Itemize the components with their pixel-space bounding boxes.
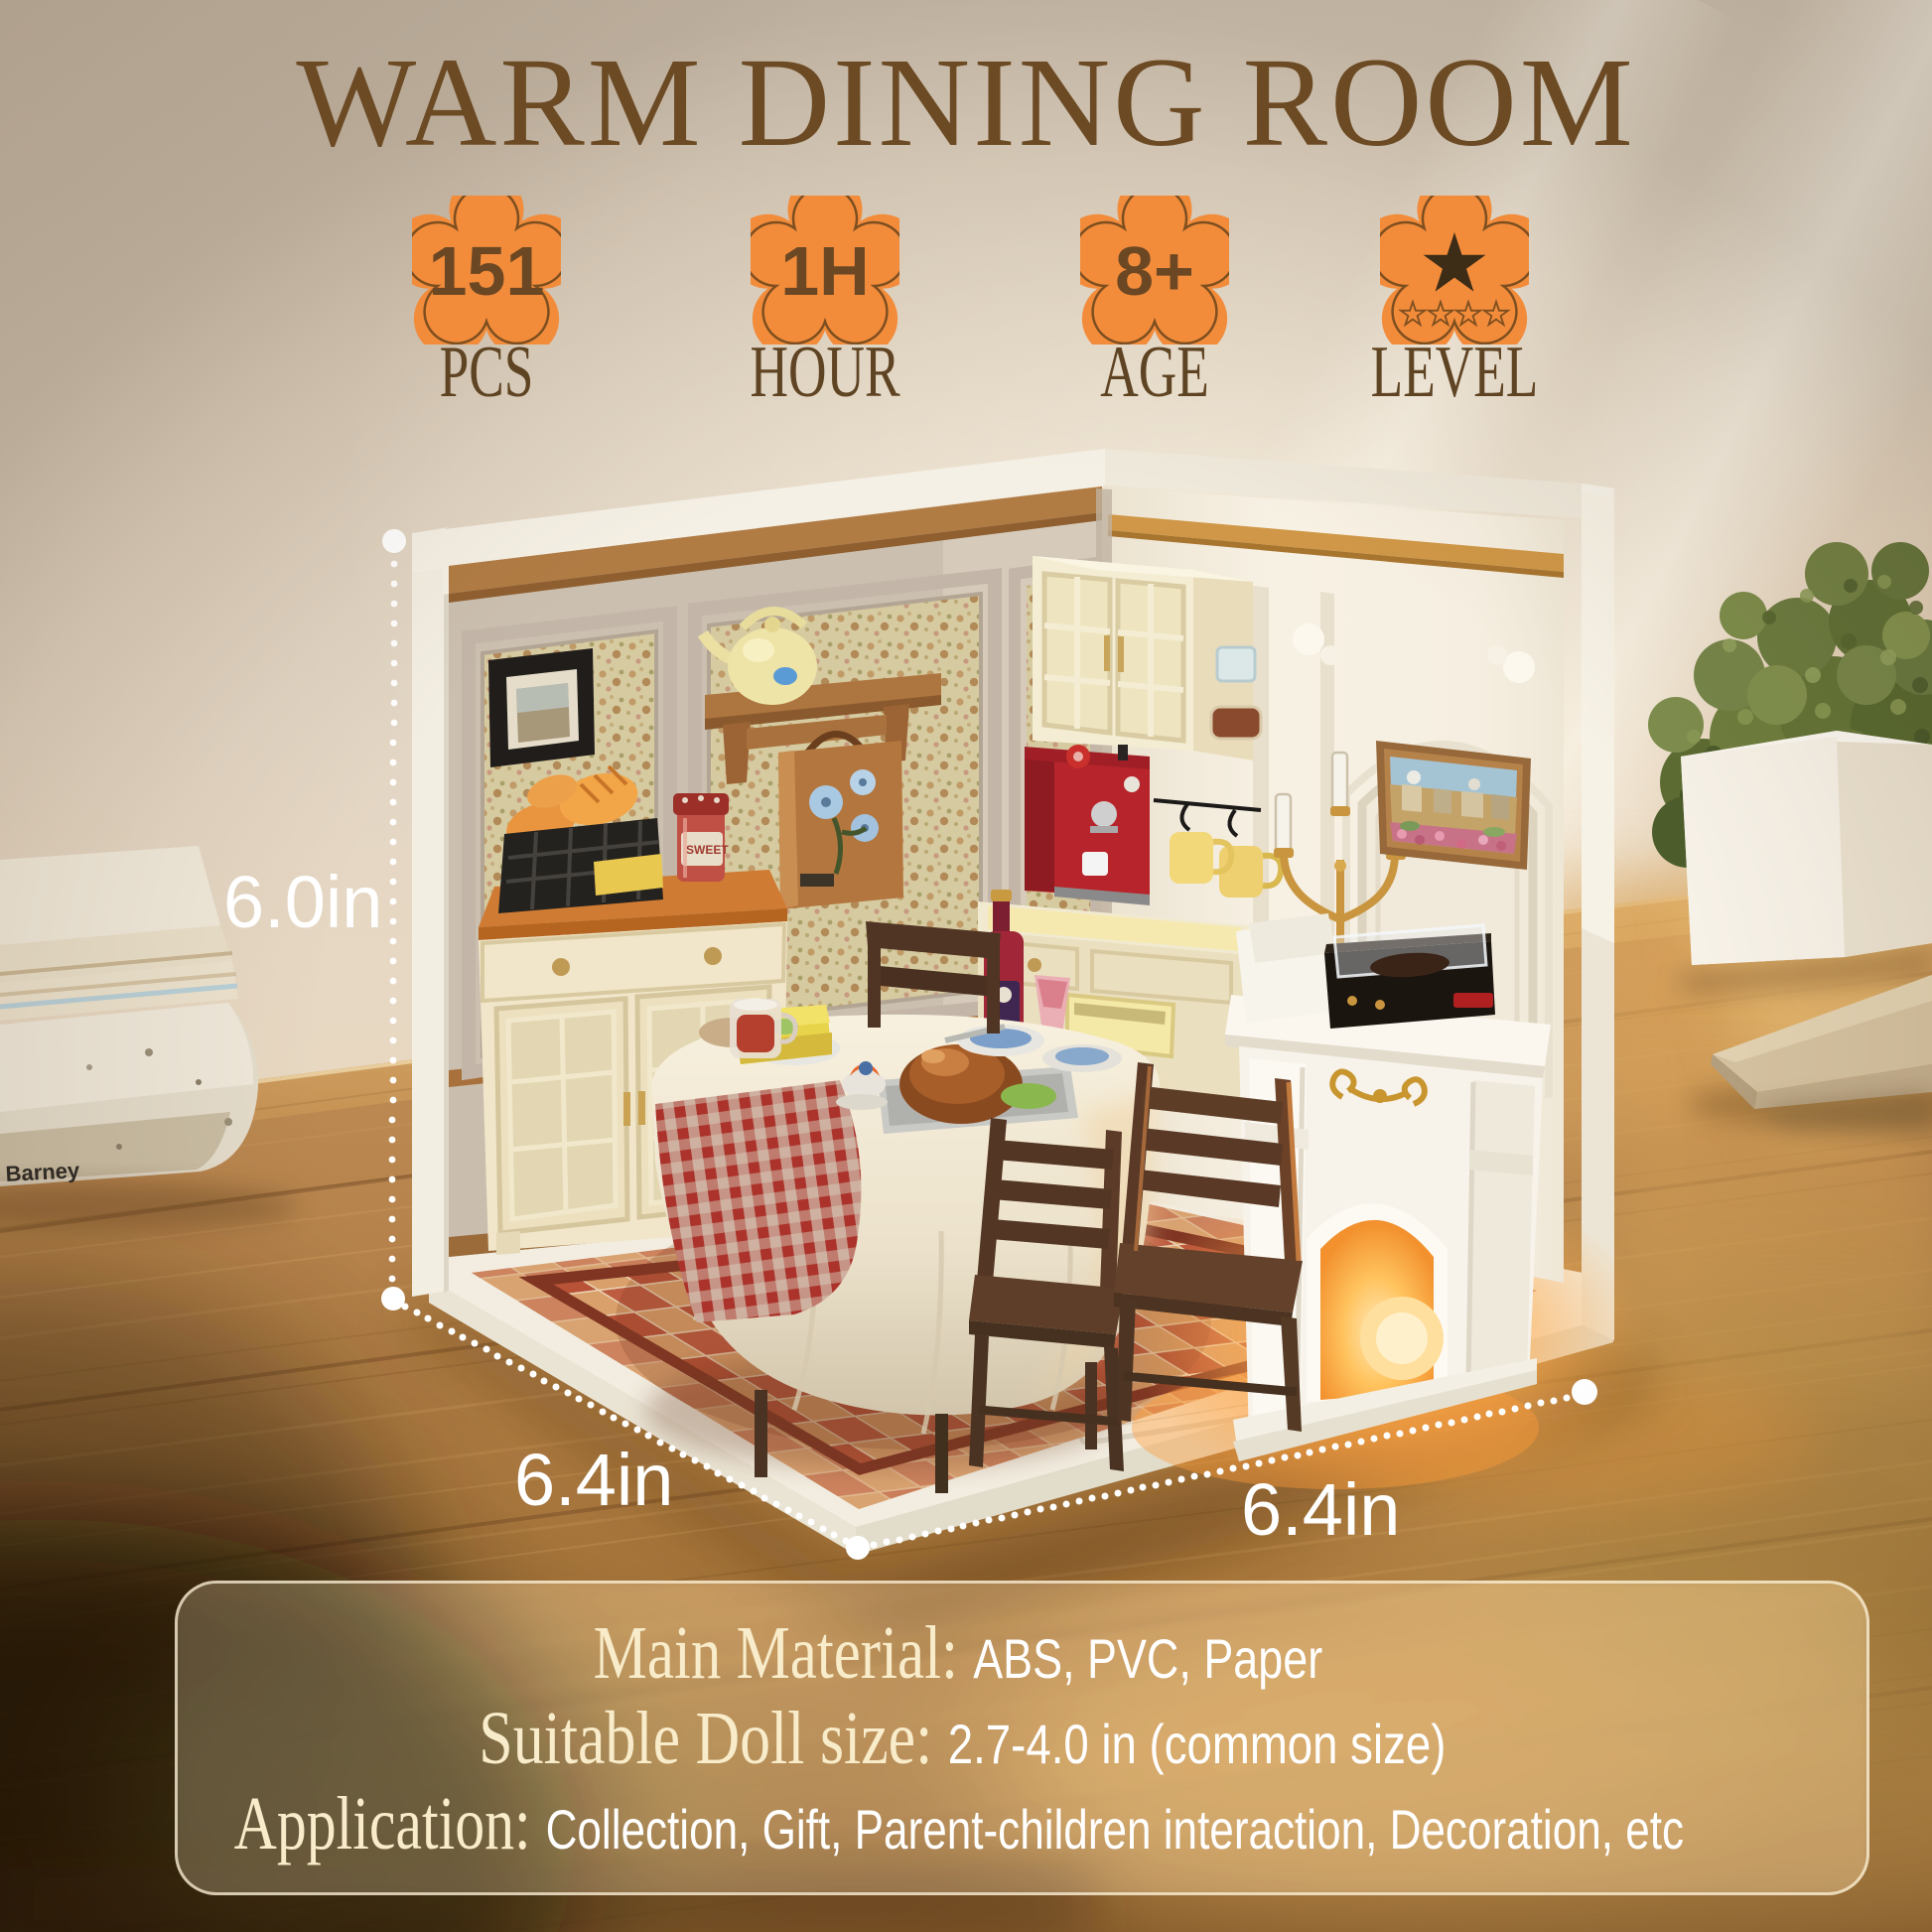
svg-text:SWEET: SWEET xyxy=(686,843,729,857)
svg-text:Barney: Barney xyxy=(5,1158,81,1186)
